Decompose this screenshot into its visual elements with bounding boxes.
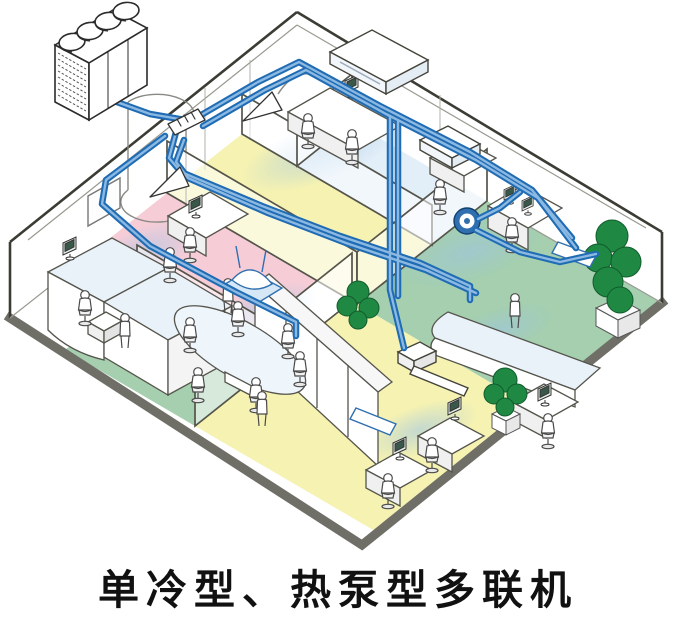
vrf-outdoor-unit bbox=[55, 1, 147, 120]
caption: 单冷型、热泵型多联机 bbox=[0, 556, 676, 616]
vrf-system-illustration bbox=[0, 0, 676, 632]
illustration-stage: 单冷型、热泵型多联机 bbox=[0, 0, 676, 632]
